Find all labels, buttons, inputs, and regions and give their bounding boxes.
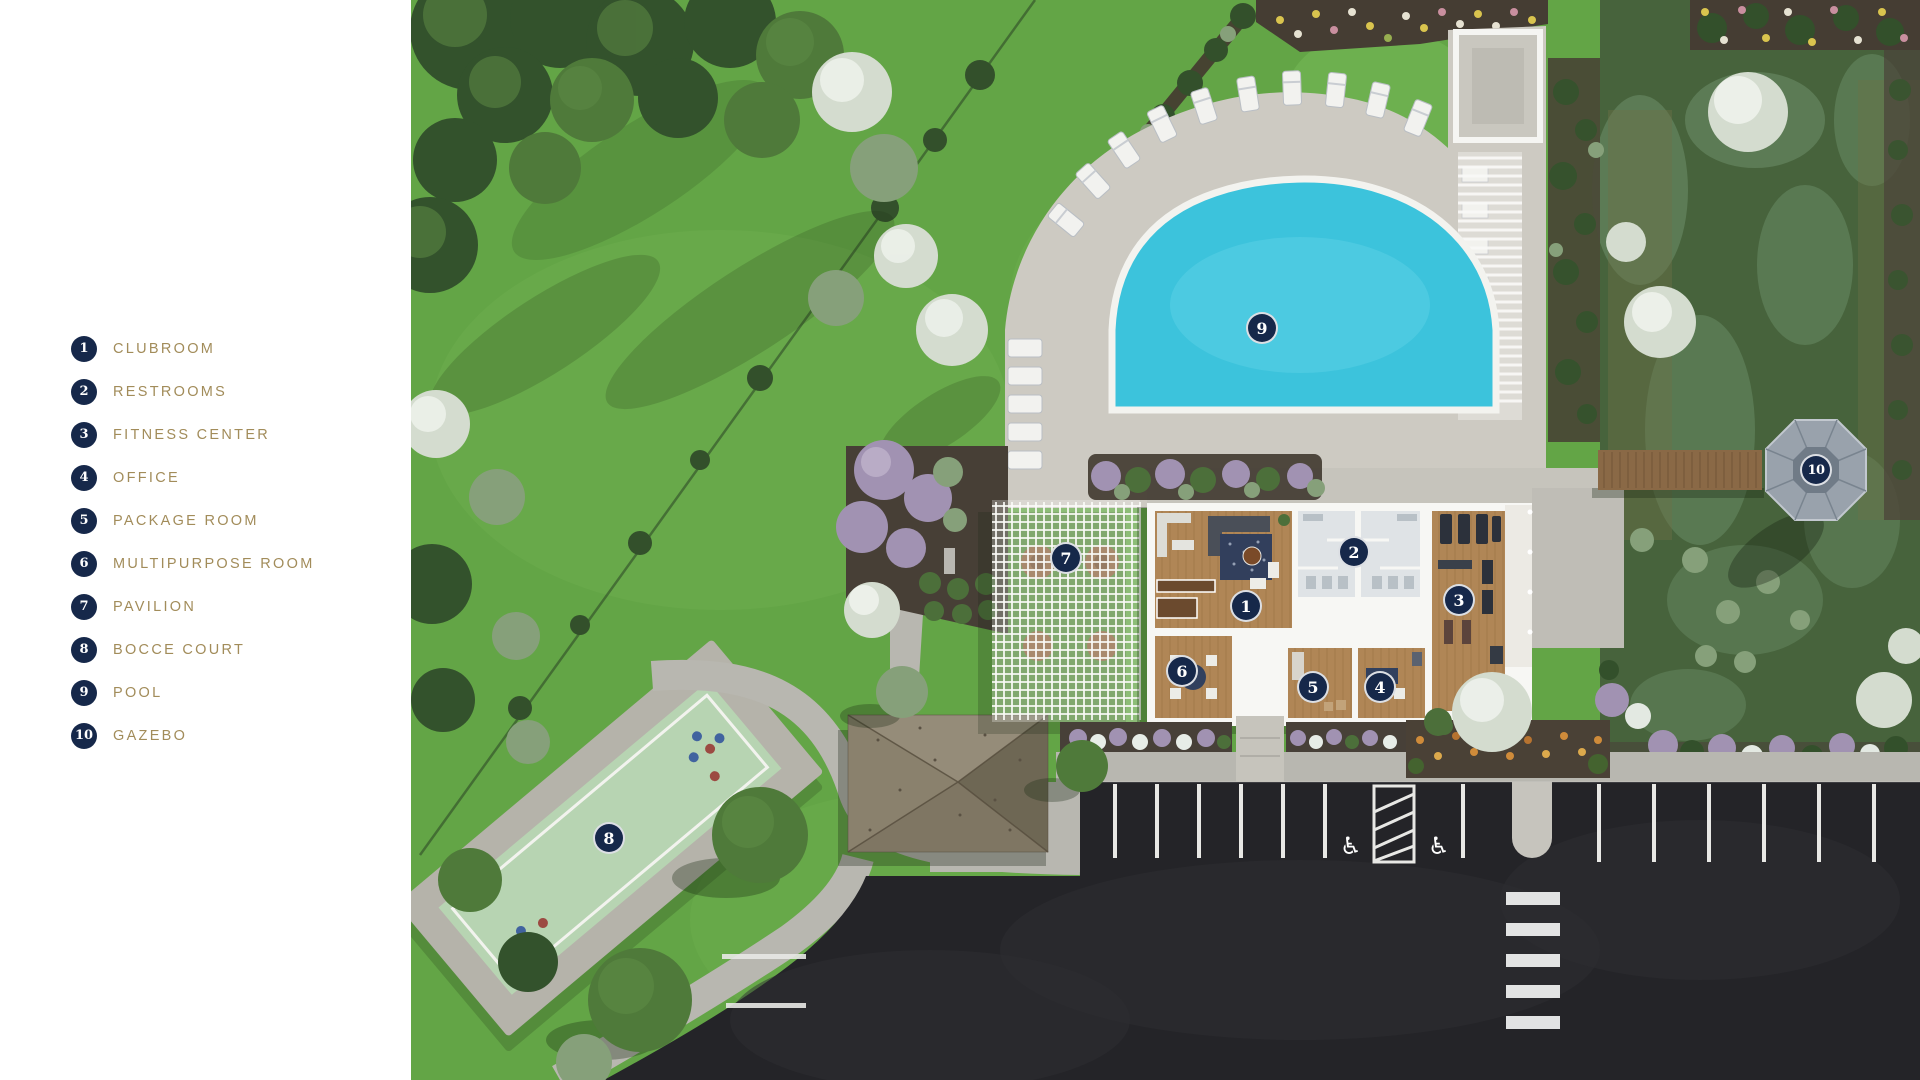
map-marker-1-number: 1 [1240,597,1251,616]
pergola-lattice [978,500,1140,734]
pavilion-roof [838,715,1048,866]
legend-badge-3: 3 [71,422,97,448]
legend-label-package-room: PACKAGE ROOM [113,513,259,529]
map-marker-4-number: 4 [1374,678,1385,697]
legend-badge-5: 5 [71,508,97,534]
curb-bulb [1512,782,1552,858]
map-marker-7: 7 [1050,542,1082,574]
legend-panel: 1 CLUBROOM 2 RESTROOMS 3 FITNESS CENTER … [0,0,411,1080]
map-marker-6-number: 6 [1176,662,1187,681]
legend-badge-7: 7 [71,594,97,620]
map-marker-3-number: 3 [1453,591,1464,610]
legend-label-restrooms: RESTROOMS [113,384,227,400]
legend-badge-1: 1 [71,336,97,362]
legend-label-multipurpose-room: MULTIPURPOSE ROOM [113,556,315,572]
legend-label-fitness-center: FITNESS CENTER [113,427,270,443]
legend-label-bocce-court: BOCCE COURT [113,642,245,658]
map-marker-9: 9 [1246,312,1278,344]
legend-label-clubroom: CLUBROOM [113,341,215,357]
legend-item-restrooms: 2 RESTROOMS [71,379,411,405]
map-marker-2: 2 [1338,536,1370,568]
legend-label-gazebo: GAZEBO [113,728,187,744]
legend-badge-2: 2 [71,379,97,405]
accessible-parking-icon: ♿ [1428,832,1450,860]
legend-item-clubroom: 1 CLUBROOM [71,336,411,362]
legend-badge-8: 8 [71,637,97,663]
legend-item-office: 4 OFFICE [71,465,411,491]
legend-item-multipurpose-room: 6 MULTIPURPOSE ROOM [71,551,411,577]
legend-label-office: OFFICE [113,470,180,486]
legend-badge-6: 6 [71,551,97,577]
legend-item-pavilion: 7 PAVILION [71,594,411,620]
map-marker-7-number: 7 [1060,549,1071,568]
legend-item-pool: 9 POOL [71,680,411,706]
legend-badge-10: 10 [71,723,97,749]
east-patio [1532,488,1624,648]
legend-item-gazebo: 10 GAZEBO [71,723,411,749]
map-marker-1: 1 [1230,590,1262,622]
map-marker-2-number: 2 [1348,543,1359,562]
legend-label-pavilion: PAVILION [113,599,196,615]
accessible-parking-icon: ♿ [1340,832,1362,860]
map-marker-4: 4 [1364,671,1396,703]
map-marker-10: 10 [1800,454,1832,486]
legend-item-fitness-center: 3 FITNESS CENTER [71,422,411,448]
map-marker-9-number: 9 [1256,319,1267,338]
legend-item-bocce-court: 8 BOCCE COURT [71,637,411,663]
map-marker-8: 8 [593,822,625,854]
meadow [1592,0,1920,790]
legend-badge-4: 4 [71,465,97,491]
map-marker-6: 6 [1166,655,1198,687]
map-marker-3: 3 [1443,584,1475,616]
mid-garden-strip [1088,454,1325,500]
legend-label-pool: POOL [113,685,163,701]
map-marker-10-number: 10 [1807,463,1824,478]
map-marker-5-number: 5 [1307,678,1318,697]
boardwalk [1592,450,1764,498]
site-plan-page: ♿ ♿ [0,0,1920,1080]
deck-enclosure [1456,32,1540,140]
map-marker-8-number: 8 [603,829,614,848]
map-marker-5: 5 [1297,671,1329,703]
legend-item-package-room: 5 PACKAGE ROOM [71,508,411,534]
legend-badge-9: 9 [71,680,97,706]
